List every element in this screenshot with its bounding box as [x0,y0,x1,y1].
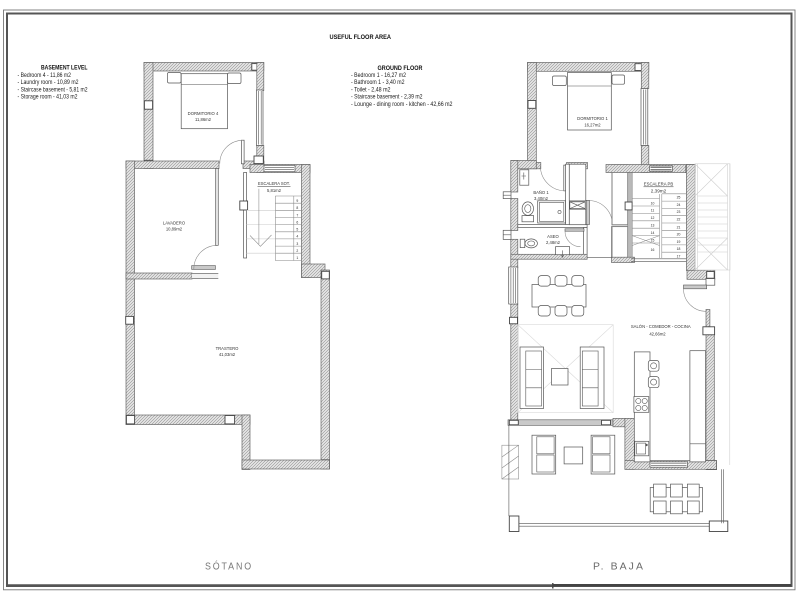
svg-text:18: 18 [677,247,681,251]
svg-text:- Storage room - 41,03 m2: - Storage room - 41,03 m2 [18,94,78,101]
svg-text:5,81m2: 5,81m2 [267,188,282,193]
svg-text:16: 16 [651,248,655,252]
svg-text:BAÑO 1: BAÑO 1 [533,190,549,195]
svg-text:11,86m2: 11,86m2 [195,117,212,122]
svg-text:2: 2 [296,249,298,253]
svg-text:SALÓN - COMEDOR - COCINA: SALÓN - COMEDOR - COCINA [631,324,691,329]
svg-text:17: 17 [677,255,681,259]
svg-text:USEFUL FLOOR AREA: USEFUL FLOOR AREA [330,34,392,41]
svg-text:11: 11 [651,209,655,213]
svg-text:- Bedroom 1 - 16,27 m2: - Bedroom 1 - 16,27 m2 [351,72,406,79]
svg-text:21: 21 [677,225,681,229]
svg-text:- Bedroom 4 - 11,86 m2: - Bedroom 4 - 11,86 m2 [18,72,72,79]
svg-text:23: 23 [677,210,681,214]
svg-text:2,48m2: 2,48m2 [546,240,561,245]
svg-text:10: 10 [651,201,655,205]
svg-text:8: 8 [296,206,298,210]
svg-text:3,40m2: 3,40m2 [534,196,549,201]
svg-text:- Staircase basement - 2,39 m2: - Staircase basement - 2,39 m2 [351,94,423,101]
svg-text:ASEO: ASEO [547,234,559,239]
svg-text:24: 24 [677,203,681,207]
svg-text:2,39m2: 2,39m2 [651,188,667,193]
svg-text:SÓTANO: SÓTANO [205,560,253,573]
svg-text:- Staircase basement - 5,81 m2: - Staircase basement - 5,81 m2 [18,87,88,94]
svg-text:DORMITORIO 1: DORMITORIO 1 [577,116,608,121]
svg-text:5: 5 [296,228,298,232]
svg-text:ESCALERA SOT.: ESCALERA SOT. [258,181,290,186]
svg-text:16,27m2: 16,27m2 [584,123,601,128]
svg-text:TRASTERO: TRASTERO [216,346,240,351]
svg-text:- Laundry room - 10,89 m2: - Laundry room - 10,89 m2 [18,79,79,86]
svg-text:- Bathroom 1 - 3,40 m2: - Bathroom 1 - 3,40 m2 [351,79,405,86]
svg-text:14: 14 [651,231,655,235]
svg-text:12: 12 [651,216,655,220]
svg-text:9: 9 [296,199,298,203]
svg-text:BASEMENT LEVEL: BASEMENT LEVEL [41,64,88,71]
svg-text:22: 22 [677,217,681,221]
svg-text:19: 19 [677,240,681,244]
svg-text:3: 3 [296,242,298,246]
svg-text:DORMITORIO 4: DORMITORIO 4 [188,111,219,116]
svg-text:41,03m2: 41,03m2 [219,352,236,357]
svg-text:- Toilet - 2,48 m2: - Toilet - 2,48 m2 [351,86,391,93]
svg-text:P. BAJA: P. BAJA [593,562,645,573]
svg-text:LAVADERO: LAVADERO [163,221,186,226]
svg-text:13: 13 [651,224,655,228]
svg-text:25: 25 [677,196,681,200]
svg-text:6: 6 [296,220,298,224]
svg-text:4: 4 [296,235,298,239]
svg-text:- Lounge - dining room - kitch: - Lounge - dining room - kitchen - 42,66… [351,101,453,108]
svg-text:GROUND FLOOR: GROUND FLOOR [378,65,423,72]
svg-text:7: 7 [296,213,298,217]
svg-text:10,89m2: 10,89m2 [166,227,183,232]
svg-text:ESCALERA PB: ESCALERA PB [644,182,674,187]
svg-text:1: 1 [296,256,298,260]
svg-text:20: 20 [677,233,681,237]
svg-text:42,66m2: 42,66m2 [649,332,666,337]
svg-text:15: 15 [651,238,655,242]
